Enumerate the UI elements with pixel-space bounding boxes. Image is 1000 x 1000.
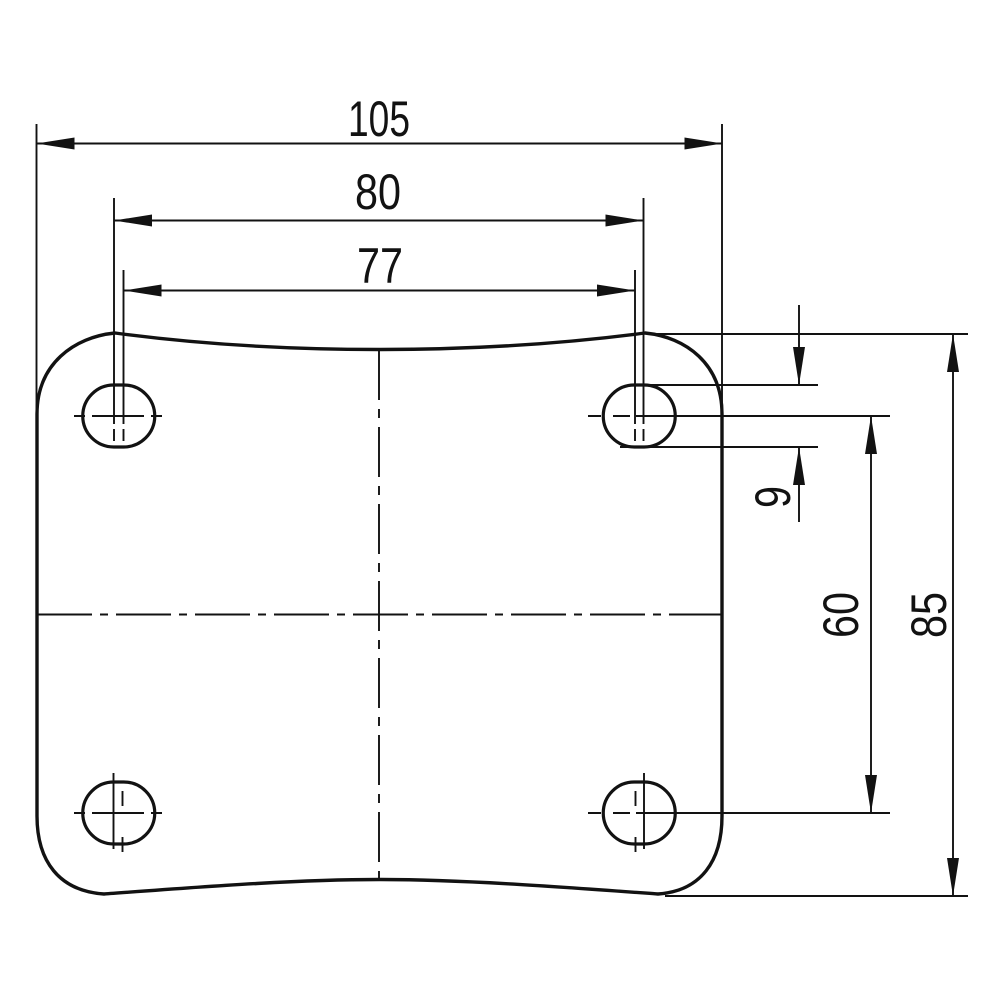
dim-label-hole-pitch-outer: 80 (355, 164, 401, 220)
arrowheads (37, 138, 960, 897)
dimension-lines (37, 144, 954, 897)
arrow-77-left (124, 285, 162, 297)
dim-label-hole-diameter: 9 (745, 486, 801, 508)
arrow-105-right (685, 138, 723, 150)
drawing-canvas: 105 80 77 9 60 85 (0, 0, 1000, 1000)
arrow-60-up (865, 416, 877, 454)
dim-label-hole-pitch-vertical: 60 (813, 592, 869, 638)
arrow-77-right (597, 285, 635, 297)
center-lines (37, 350, 722, 878)
arrow-105-left (37, 138, 75, 150)
technical-drawing: 105 80 77 9 60 85 (0, 0, 1000, 1000)
extension-lines (37, 124, 969, 896)
arrow-9-up (793, 447, 805, 485)
arrow-9-down (793, 347, 805, 385)
dim-label-hole-pitch-inner: 77 (357, 238, 403, 294)
dim-label-plate-height: 85 (901, 592, 957, 638)
arrow-80-right (606, 215, 644, 227)
dim-label-plate-width: 105 (348, 91, 410, 147)
dimension-labels: 105 80 77 9 60 85 (348, 91, 957, 638)
arrow-85-up (947, 334, 959, 372)
arrow-60-down (865, 775, 877, 813)
arrow-85-down (947, 858, 959, 896)
arrow-80-left (114, 215, 152, 227)
